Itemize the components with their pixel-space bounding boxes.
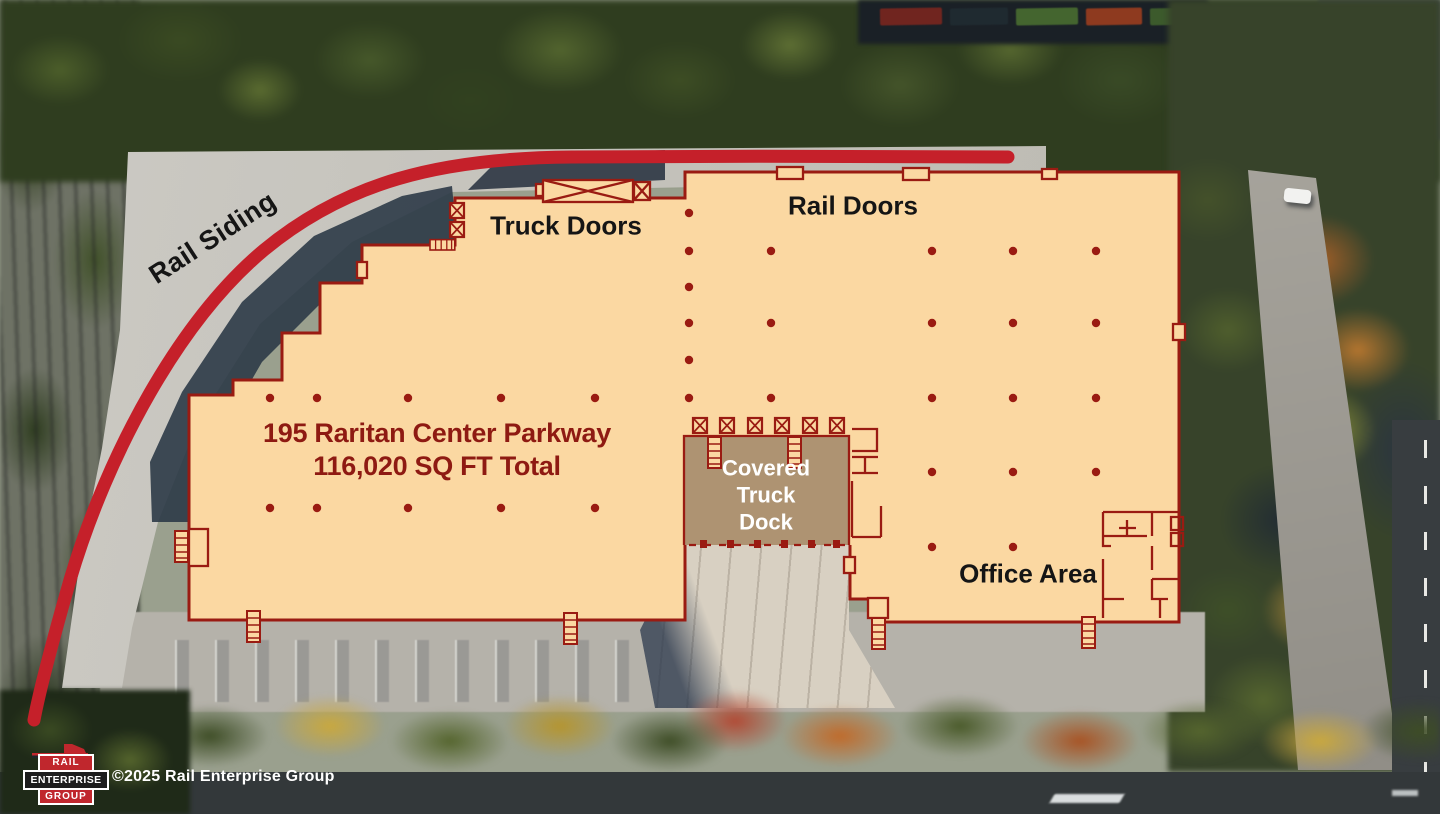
column-dot: [685, 319, 693, 327]
office-area-label: Office Area: [959, 559, 1097, 590]
copyright-text: ©2025 Rail Enterprise Group: [112, 768, 335, 786]
truck-doors-label: Truck Doors: [490, 211, 642, 242]
column-dot: [685, 394, 693, 402]
column-dot: [928, 319, 936, 327]
logo-line3: GROUP: [38, 788, 94, 806]
address-label: 195 Raritan Center Parkway 116,020 SQ FT…: [263, 417, 611, 483]
column-dot: [313, 504, 321, 512]
column-dot: [767, 319, 775, 327]
column-dot: [685, 283, 693, 291]
address-line2: 116,020 SQ FT Total: [263, 450, 611, 483]
column-dot: [928, 468, 936, 476]
logo-line2: ENTERPRISE: [23, 770, 109, 790]
company-logo: RAIL ENTERPRISE GROUP: [20, 740, 112, 812]
column-dot: [497, 504, 505, 512]
column-dot: [497, 394, 505, 402]
column-dot: [685, 247, 693, 255]
covered-truck-dock-label: Covered Truck Dock: [722, 455, 810, 536]
site-plan-canvas: Rail Siding Truck Doors Rail Doors Offic…: [0, 0, 1440, 814]
rail-doors-label: Rail Doors: [788, 191, 918, 222]
x-door-icon-large: [536, 180, 650, 202]
column-dot: [767, 394, 775, 402]
column-dot: [928, 247, 936, 255]
column-dot: [928, 394, 936, 402]
column-dot: [1009, 543, 1017, 551]
column-dot: [266, 504, 274, 512]
column-dot: [591, 394, 599, 402]
column-dot: [404, 394, 412, 402]
column-dot: [1009, 468, 1017, 476]
address-line1: 195 Raritan Center Parkway: [263, 417, 611, 450]
column-dot: [1092, 319, 1100, 327]
column-dot: [685, 356, 693, 364]
column-dot: [1009, 319, 1017, 327]
column-dot: [767, 247, 775, 255]
column-dot: [928, 543, 936, 551]
column-dot: [266, 394, 274, 402]
column-dot: [591, 504, 599, 512]
column-dot: [1009, 247, 1017, 255]
column-dot: [1092, 247, 1100, 255]
column-dot: [1009, 394, 1017, 402]
column-dot: [685, 209, 693, 217]
column-dot: [1092, 394, 1100, 402]
column-dot: [404, 504, 412, 512]
site-plan-overlay: [0, 0, 1440, 814]
logo-badge: RAIL ENTERPRISE GROUP: [20, 754, 112, 805]
column-dot: [1092, 468, 1100, 476]
column-dot: [313, 394, 321, 402]
